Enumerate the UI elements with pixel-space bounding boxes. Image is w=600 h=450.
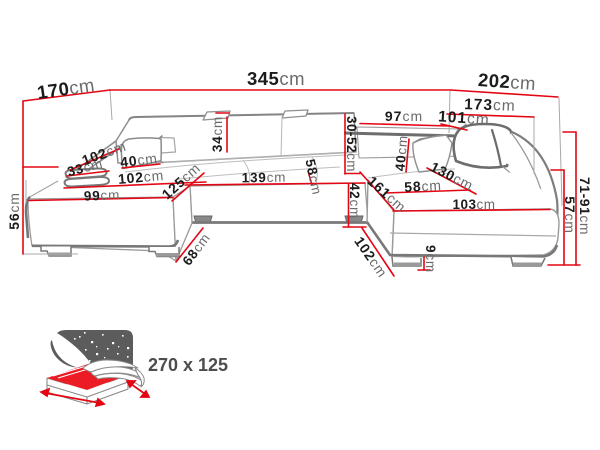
svg-text:345cm: 345cm: [247, 68, 305, 89]
svg-text:57cm: 57cm: [562, 196, 578, 233]
svg-text:42cm: 42cm: [347, 183, 362, 219]
svg-text:97cm: 97cm: [385, 108, 423, 124]
svg-text:9cm: 9cm: [423, 245, 438, 273]
svg-text:103cm: 103cm: [452, 197, 495, 212]
svg-text:34cm: 34cm: [210, 116, 225, 152]
svg-text:101cm: 101cm: [438, 108, 491, 129]
svg-text:202cm: 202cm: [477, 69, 536, 94]
svg-text:71-91cm: 71-91cm: [577, 177, 593, 235]
svg-text:58cm: 58cm: [404, 177, 442, 195]
svg-text:40cm: 40cm: [392, 134, 410, 171]
svg-text:99cm: 99cm: [84, 187, 121, 203]
svg-text:56cm: 56cm: [6, 192, 22, 229]
svg-text:270 x 125: 270 x 125: [148, 355, 228, 375]
svg-text:30-52cm: 30-52cm: [344, 116, 359, 172]
svg-text:139cm: 139cm: [242, 170, 287, 186]
